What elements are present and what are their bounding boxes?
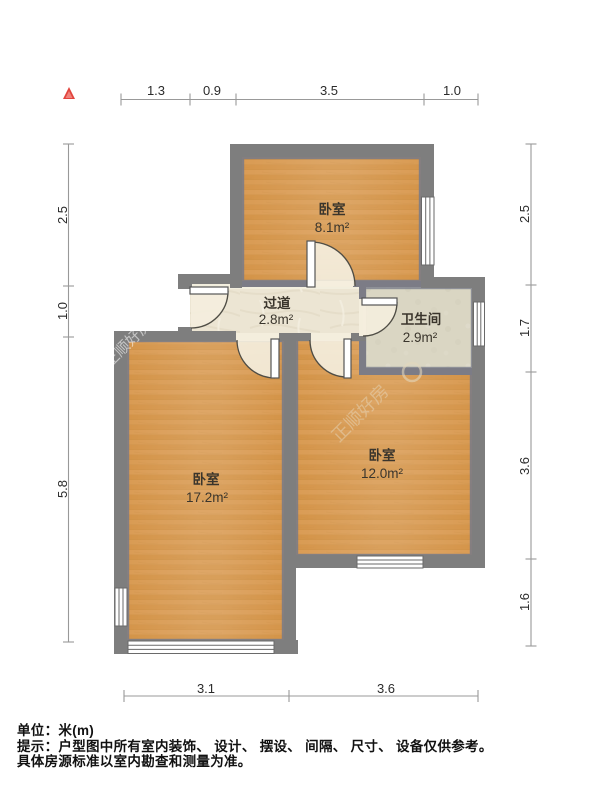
svg-text:2.9m²: 2.9m² — [403, 330, 438, 345]
svg-text:1.6: 1.6 — [517, 593, 532, 611]
svg-text:5.8: 5.8 — [55, 480, 70, 498]
svg-text:0.9: 0.9 — [203, 83, 221, 98]
svg-text:8.1m²: 8.1m² — [315, 220, 350, 235]
svg-text:提示：户型图中所有室内装饰、 设计、 摆设、 间隔、 尺寸、: 提示：户型图中所有室内装饰、 设计、 摆设、 间隔、 尺寸、 设备仅供参考。 — [17, 738, 493, 754]
svg-text:1.7: 1.7 — [517, 319, 532, 337]
svg-text:1.3: 1.3 — [147, 83, 165, 98]
svg-text:3.6: 3.6 — [517, 457, 532, 475]
svg-text:3.5: 3.5 — [320, 83, 338, 98]
svg-text:卫生间: 卫生间 — [401, 311, 442, 327]
svg-text:3.6: 3.6 — [377, 681, 395, 696]
svg-text:卧室: 卧室 — [369, 447, 396, 463]
svg-text:3.1: 3.1 — [197, 681, 215, 696]
svg-text:1.0: 1.0 — [443, 83, 461, 98]
svg-text:17.2m²: 17.2m² — [186, 490, 229, 505]
svg-text:12.0m²: 12.0m² — [361, 466, 404, 481]
svg-text:单位：米(m): 单位：米(m) — [17, 722, 94, 738]
svg-text:卧室: 卧室 — [193, 471, 220, 487]
svg-text:卧室: 卧室 — [319, 201, 346, 217]
svg-text:2.5: 2.5 — [55, 206, 70, 224]
svg-text:具体房源标准以室内勘查和测量为准。: 具体房源标准以室内勘查和测量为准。 — [16, 753, 252, 769]
svg-text:过道: 过道 — [264, 295, 291, 311]
svg-text:1.0: 1.0 — [55, 302, 70, 320]
svg-text:2.5: 2.5 — [517, 205, 532, 223]
svg-text:2.8m²: 2.8m² — [259, 312, 294, 327]
